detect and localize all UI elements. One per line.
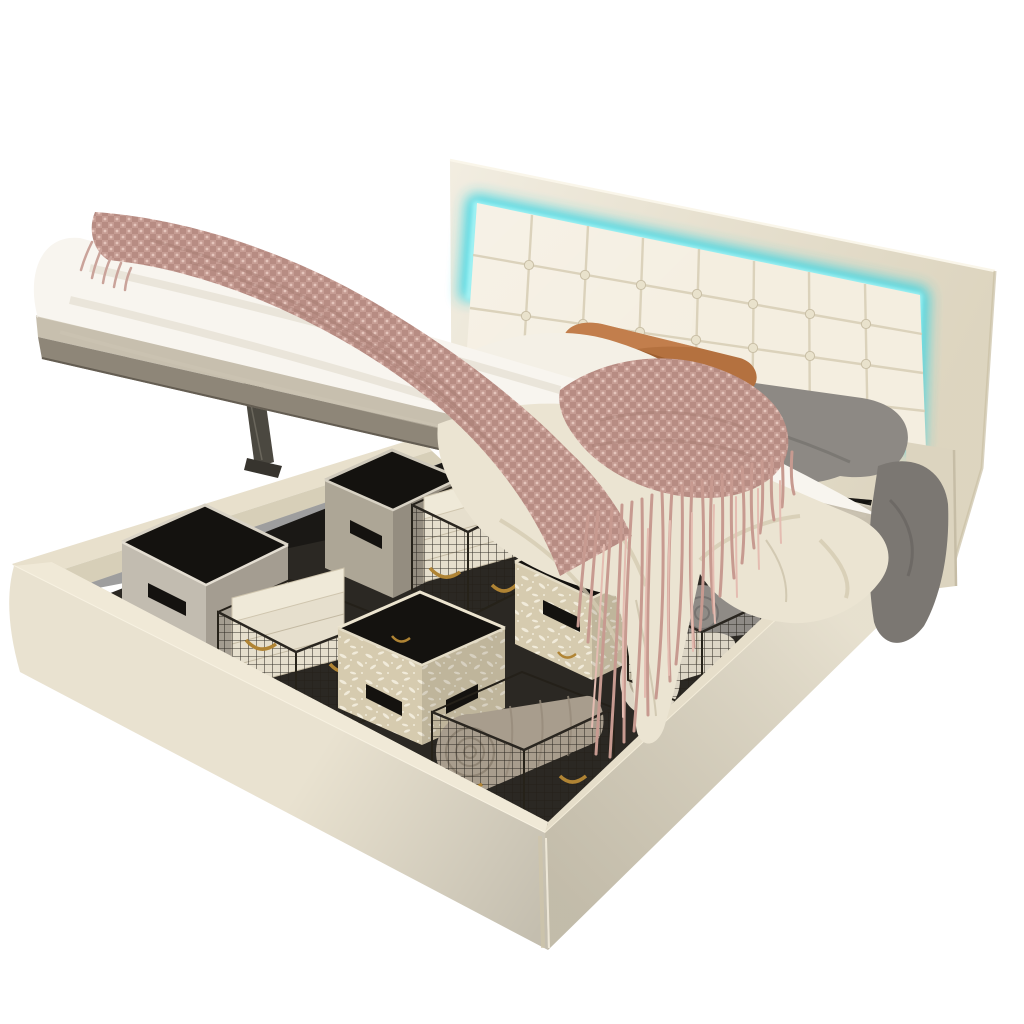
tuft-button	[580, 270, 589, 279]
tuft-button	[636, 280, 645, 289]
tuft-button	[748, 299, 757, 308]
tuft-button	[748, 343, 757, 352]
tuft-button	[692, 289, 701, 298]
tuft-button	[861, 319, 870, 328]
product-photo-bed: Cream upholstered queen platform bed wit…	[0, 0, 1024, 1024]
tuft-button	[524, 260, 533, 269]
bed-render	[0, 0, 1024, 1024]
tuft-button	[521, 311, 530, 320]
tuft-button	[691, 335, 700, 344]
tuft-button	[805, 351, 814, 360]
tuft-button	[861, 359, 870, 368]
tuft-button	[805, 309, 814, 318]
